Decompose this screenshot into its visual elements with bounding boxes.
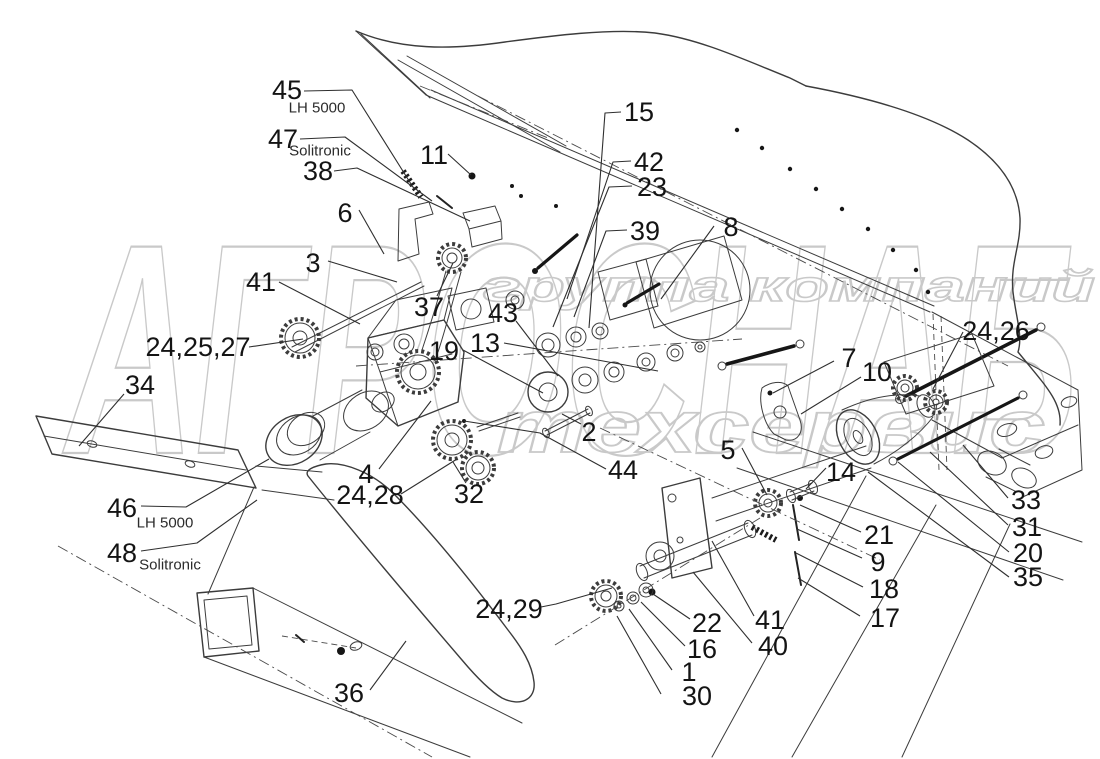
callout-24,28: 24,28 bbox=[336, 480, 404, 510]
watermark-tagline: группа компаний bbox=[483, 262, 1095, 311]
callout-41: 41 bbox=[246, 267, 276, 297]
callout-35: 35 bbox=[1013, 562, 1043, 592]
callout-11: 11 bbox=[420, 140, 448, 170]
leader-line-1 bbox=[629, 609, 672, 670]
square-tube-beam bbox=[58, 546, 522, 757]
callout-32: 32 bbox=[454, 479, 484, 509]
callout-21: 21 bbox=[864, 520, 894, 550]
leader-line-36 bbox=[370, 641, 406, 690]
callout-18: 18 bbox=[869, 574, 899, 604]
bolt-36 bbox=[337, 647, 345, 655]
callout-34: 34 bbox=[125, 370, 155, 400]
callout-9: 9 bbox=[870, 547, 885, 577]
callout-40: 40 bbox=[758, 631, 788, 661]
callout-13: 13 bbox=[470, 328, 500, 358]
callout-2: 2 bbox=[581, 417, 596, 447]
leader-line-9 bbox=[797, 529, 862, 558]
callout-5: 5 bbox=[720, 435, 735, 465]
leader-line-22 bbox=[653, 594, 690, 619]
callout-46: 46 bbox=[107, 493, 137, 523]
leader-line-30 bbox=[617, 616, 661, 694]
callout-24,25,27: 24,25,27 bbox=[145, 332, 250, 362]
callout-10: 10 bbox=[862, 357, 892, 387]
callout-24,26: 24,26 bbox=[962, 316, 1030, 346]
callout-48: 48 bbox=[107, 538, 137, 568]
callout-sub-46: LH 5000 bbox=[137, 515, 194, 532]
diagram-page: АГРОСНАБ группа компаний техсервис bbox=[0, 0, 1100, 759]
leader-line-41 bbox=[712, 541, 754, 616]
callout-44: 44 bbox=[608, 455, 638, 485]
callout-33: 33 bbox=[1011, 485, 1041, 515]
callout-15: 15 bbox=[624, 97, 654, 127]
callout-38: 38 bbox=[303, 156, 333, 186]
callout-17: 17 bbox=[870, 603, 900, 633]
callout-sub-48: Solitronic bbox=[139, 557, 201, 574]
callout-7: 7 bbox=[841, 343, 856, 373]
callout-3: 3 bbox=[305, 248, 320, 278]
callout-6: 6 bbox=[337, 198, 352, 228]
exploded-parts-drawing: АГРОСНАБ группа компаний техсервис bbox=[0, 0, 1100, 759]
callout-30: 30 bbox=[682, 681, 712, 711]
callout-24,29: 24,29 bbox=[475, 594, 543, 624]
leader-line-18 bbox=[796, 553, 863, 587]
leader-line-16 bbox=[641, 602, 685, 646]
callout-36: 36 bbox=[334, 678, 364, 708]
callout-37: 37 bbox=[414, 292, 444, 322]
callout-sub-45: LH 5000 bbox=[289, 100, 346, 117]
callout-23: 23 bbox=[637, 172, 667, 202]
leader-line-11 bbox=[448, 154, 471, 175]
callout-43: 43 bbox=[488, 298, 518, 328]
callout-19: 19 bbox=[429, 336, 459, 366]
leader-line-17 bbox=[798, 578, 860, 616]
callout-8: 8 bbox=[723, 212, 738, 242]
callout-39: 39 bbox=[630, 216, 660, 246]
callout-14: 14 bbox=[826, 457, 856, 487]
